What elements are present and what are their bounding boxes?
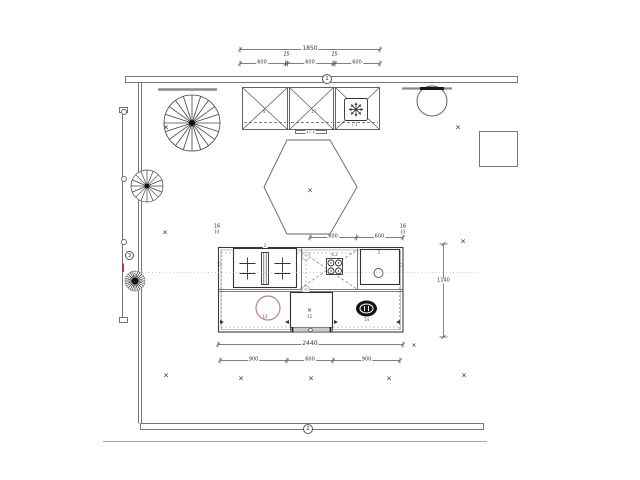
cross-mark: × xyxy=(411,343,416,349)
cross-mark: × xyxy=(461,373,467,380)
plan-linework xyxy=(0,0,640,480)
section-marker-2: 2 xyxy=(303,424,313,434)
cross-mark: × xyxy=(307,188,313,195)
dim-1850: 1850 xyxy=(301,46,318,52)
cross-mark: × xyxy=(386,376,392,383)
cross-mark: × xyxy=(163,373,169,380)
extractor-hood-symbol xyxy=(345,99,368,121)
section-marker-3: 3 xyxy=(125,251,134,260)
hob-label: 6.2 xyxy=(330,253,338,257)
dim-600-a: 600 xyxy=(256,61,268,66)
cross-mark: × xyxy=(307,308,312,314)
island-unit-label: 2 xyxy=(263,244,268,248)
extractor-hood-label: 7.1 xyxy=(350,123,358,127)
left-railing xyxy=(120,108,128,323)
dim-island-600-b: 600 xyxy=(374,235,386,240)
cross-mark: × xyxy=(162,230,168,237)
radial-symbol-small xyxy=(125,271,145,291)
dim-600-d: 600 xyxy=(304,358,316,363)
railing-post xyxy=(122,110,127,115)
dim-900-a: 900 xyxy=(248,358,260,363)
dim-island-600-a: 600 xyxy=(327,235,339,240)
dim-25-b: 25 xyxy=(331,53,337,58)
cross-mark: × xyxy=(460,239,466,246)
right-square-symbol xyxy=(480,132,518,167)
outlet-bottom-label: 4A xyxy=(304,288,309,292)
cross-mark: × xyxy=(455,125,461,132)
wall-cabinet-left-label: 4 xyxy=(263,110,266,114)
radial-symbol-large xyxy=(164,95,220,151)
dim-600-c: 600 xyxy=(351,61,363,66)
railing-post xyxy=(122,177,127,182)
cross-mark: × xyxy=(308,376,314,383)
wall-shelf-label: 17.1 xyxy=(305,130,316,134)
section-marker-1-label: 1 xyxy=(325,76,329,82)
section-marker-1: 1 xyxy=(322,74,332,84)
outlet-top-label: 4B xyxy=(304,254,309,258)
basin-oval-label: 14 xyxy=(364,318,369,322)
dim-2440: 2440 xyxy=(301,341,318,347)
cross-mark: × xyxy=(238,376,244,383)
floorplan-canvas: 1 2 3 1850 600 25 600 25 600 16 16 600 6… xyxy=(0,0,640,480)
dim-900-b: 900 xyxy=(361,358,373,363)
radial-symbol-medium xyxy=(131,170,163,202)
dim-25-a: 25 xyxy=(283,53,289,58)
wall-cabinet-mid-label: 17 xyxy=(311,110,316,114)
island-left-edge-label: 11 xyxy=(218,261,222,266)
railing-post xyxy=(122,240,127,245)
sink-inset-label: 2 xyxy=(378,251,381,255)
island-appliance-unit xyxy=(234,249,297,288)
basin-oval-symbol xyxy=(356,301,377,317)
left-wall xyxy=(139,83,142,424)
dim-600-b: 600 xyxy=(304,61,316,66)
wall-circle-symbol xyxy=(417,86,447,116)
cross-mark: × xyxy=(163,125,169,132)
kitchen-island xyxy=(219,248,404,333)
dim-overhang-right: 16 xyxy=(400,225,406,230)
cooktop-circle-label: 13 xyxy=(262,315,267,319)
section-marker-2-label: 2 xyxy=(306,426,310,432)
dishwasher-label: 12 xyxy=(307,315,312,319)
dim-overhang-left: 16 xyxy=(214,225,220,230)
section-marker-3-label: 3 xyxy=(128,253,131,259)
dim-1140: 1140 xyxy=(436,279,451,284)
island-right-edge-label: 12 xyxy=(400,262,404,267)
